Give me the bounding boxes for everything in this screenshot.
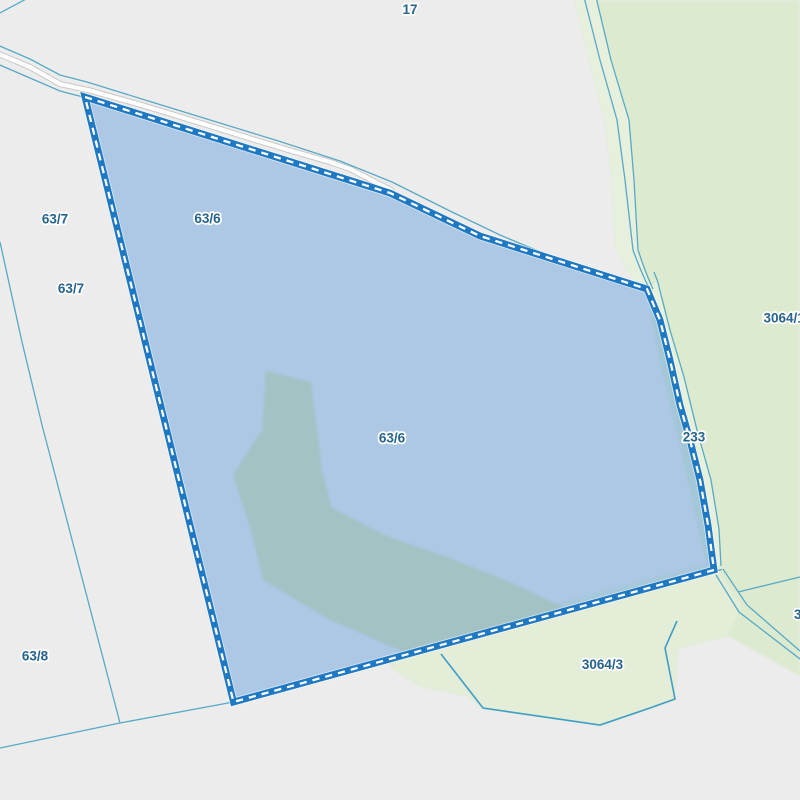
svg-text:233: 233 [683, 430, 706, 445]
svg-text:3064/1: 3064/1 [764, 311, 800, 326]
svg-text:3: 3 [794, 607, 800, 622]
svg-text:63/6: 63/6 [379, 431, 406, 446]
svg-text:3064/3: 3064/3 [582, 657, 624, 672]
svg-text:63/8: 63/8 [22, 649, 49, 664]
svg-text:63/6: 63/6 [194, 211, 221, 226]
svg-text:63/7: 63/7 [42, 212, 68, 227]
svg-text:63/7: 63/7 [58, 281, 84, 296]
svg-text:17: 17 [402, 2, 417, 17]
